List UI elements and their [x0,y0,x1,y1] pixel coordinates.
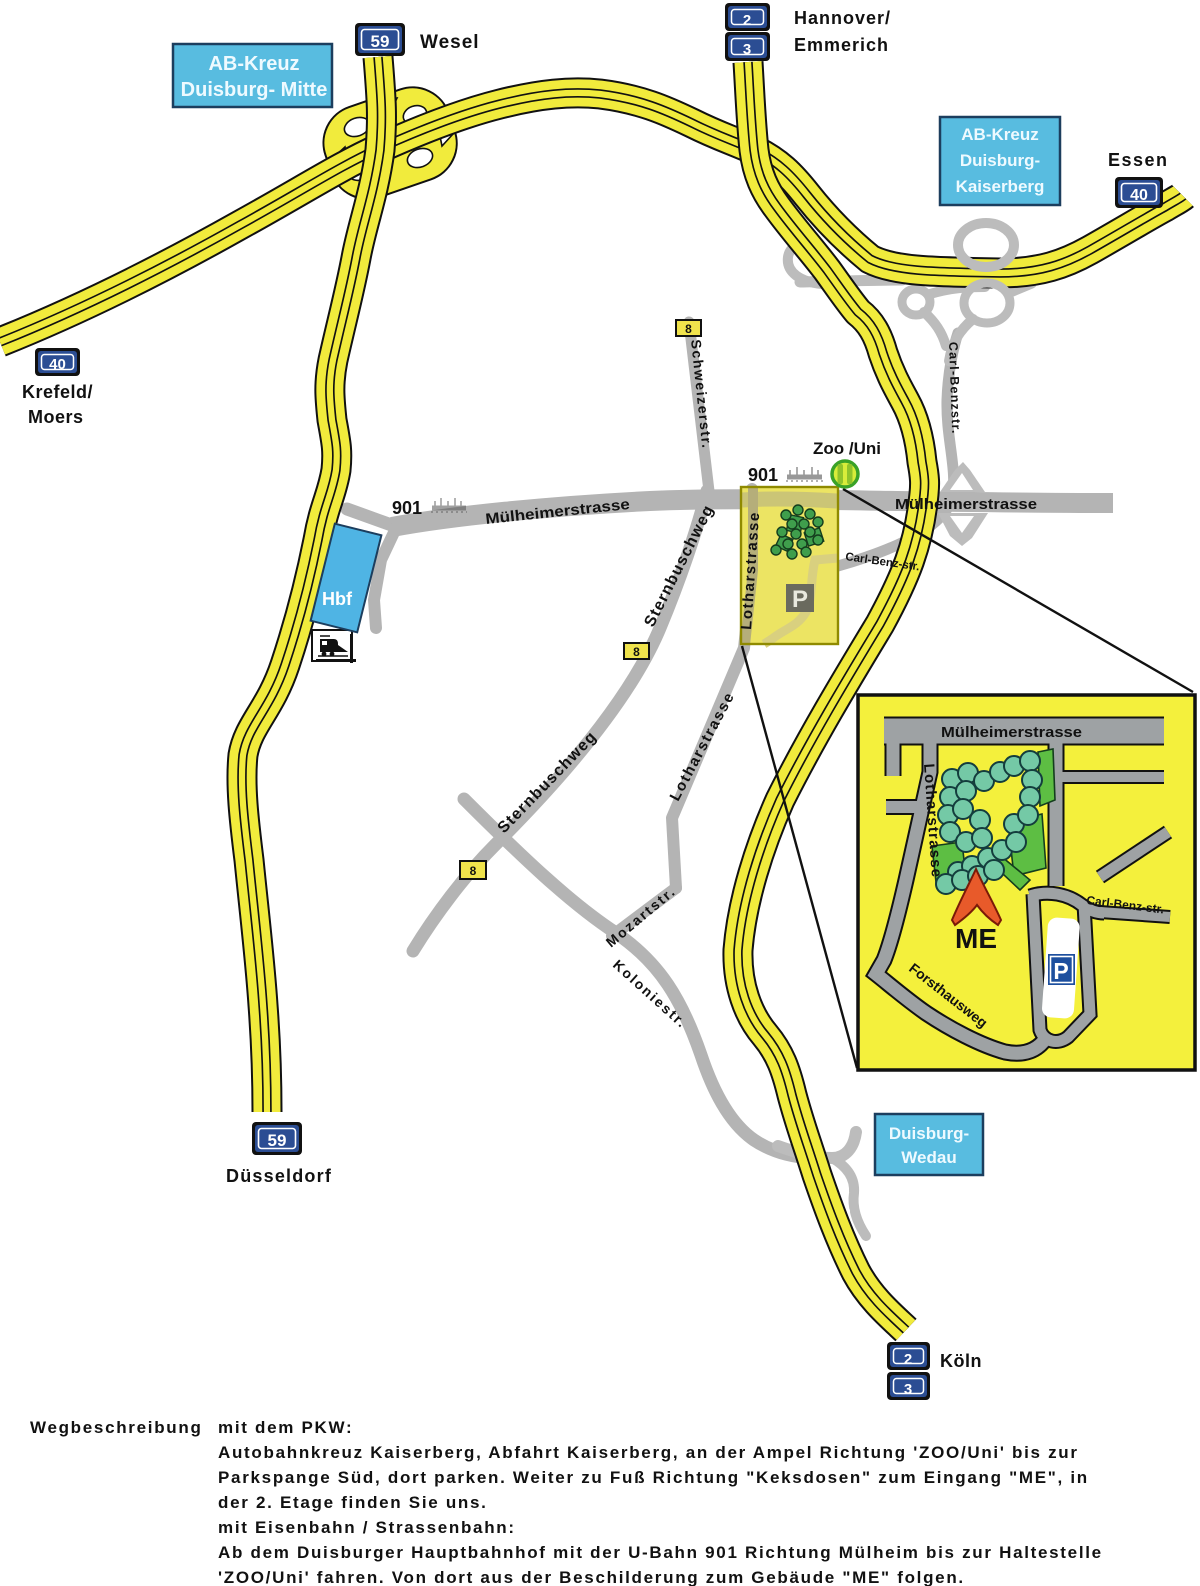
svg-text:2: 2 [743,12,751,29]
svg-text:AB-Kreuz: AB-Kreuz [208,53,299,75]
svg-text:Köln: Köln [940,1351,982,1371]
svg-text:40: 40 [49,356,66,373]
svg-text:Wesel: Wesel [420,32,480,53]
svg-text:Duisburg-: Duisburg- [889,1124,969,1143]
svg-text:3: 3 [904,1381,912,1398]
svg-text:Hbf: Hbf [322,589,353,609]
svg-text:40: 40 [1130,187,1148,204]
svg-text:Duisburg-: Duisburg- [960,151,1040,170]
svg-text:Lotharstrasse: Lotharstrasse [667,689,739,804]
svg-text:AB-Kreuz: AB-Kreuz [961,125,1038,144]
svg-text:Zoo /Uni: Zoo /Uni [813,439,881,458]
svg-text:Kaiserberg: Kaiserberg [956,177,1045,196]
svg-text:8: 8 [633,645,640,659]
svg-text:8: 8 [470,864,477,878]
svg-text:59: 59 [371,32,390,51]
svg-text:8: 8 [685,322,692,336]
svg-text:'ZOO/Uni' fahren. Von dort aus: 'ZOO/Uni' fahren. Von dort aus der Besch… [218,1568,965,1586]
svg-text:901: 901 [392,498,422,518]
svg-text:Ab dem Duisburger Hauptbahnhof: Ab dem Duisburger Hauptbahnhof mit der U… [218,1543,1103,1562]
svg-text:Emmerich: Emmerich [794,35,889,55]
svg-text:Wegbeschreibung: Wegbeschreibung [30,1418,203,1437]
svg-text:Autobahnkreuz Kaiserberg, Abfa: Autobahnkreuz Kaiserberg, Abfahrt Kaiser… [218,1443,1079,1462]
svg-text:mit dem PKW:: mit dem PKW: [218,1418,353,1437]
svg-text:Moers: Moers [28,407,84,427]
svg-text:P: P [792,586,808,613]
svg-text:Mozartstr.: Mozartstr. [603,883,679,951]
svg-text:ME: ME [955,923,997,954]
svg-text:901: 901 [748,465,778,485]
svg-text:P: P [1053,958,1068,984]
svg-text:3: 3 [743,41,751,58]
svg-text:Hannover/: Hannover/ [794,8,891,28]
svg-text:Krefeld/: Krefeld/ [22,382,93,402]
svg-text:Parkspange Süd, dort parken. W: Parkspange Süd, dort parken. Weiter zu F… [218,1468,1089,1487]
svg-text:Mülheimerstrasse: Mülheimerstrasse [895,496,1037,513]
svg-text:2: 2 [904,1351,912,1368]
svg-text:Sternbuschweg: Sternbuschweg [641,502,717,630]
svg-text:Wedau: Wedau [901,1148,956,1167]
svg-text:Mülheimerstrasse: Mülheimerstrasse [941,724,1082,741]
svg-text:Düsseldorf: Düsseldorf [226,1166,332,1186]
svg-text:Essen: Essen [1108,150,1169,170]
svg-text:der 2. Etage finden Sie uns.: der 2. Etage finden Sie uns. [218,1493,488,1512]
svg-text:Sternbuschweg: Sternbuschweg [495,728,601,837]
svg-text:mit Eisenbahn / Strassenbahn:: mit Eisenbahn / Strassenbahn: [218,1518,516,1537]
svg-text:59: 59 [268,1131,287,1150]
svg-text:Duisburg- Mitte: Duisburg- Mitte [181,79,328,101]
